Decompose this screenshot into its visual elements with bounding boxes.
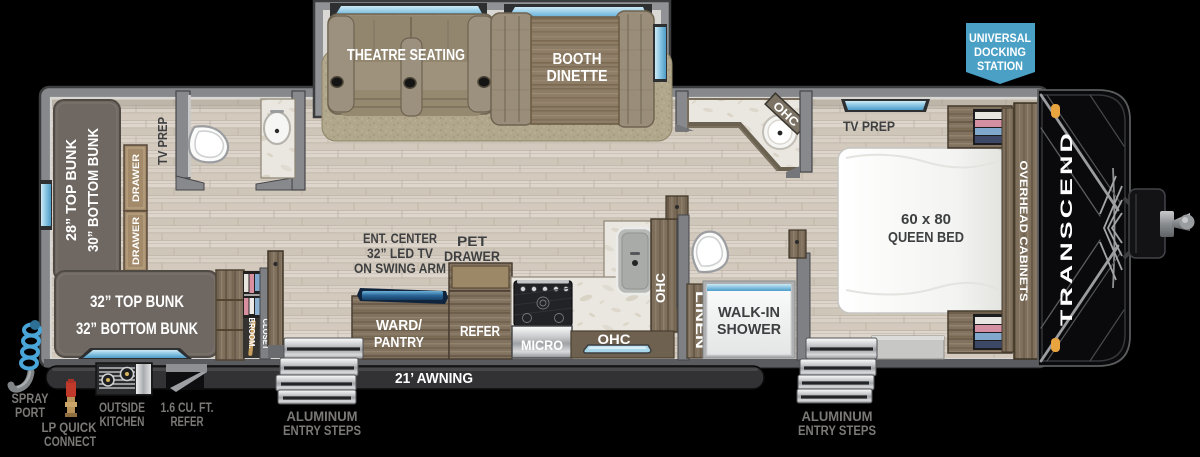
svg-text:BOOTH: BOOTH — [553, 51, 602, 68]
svg-text:THEATRE SEATING: THEATRE SEATING — [347, 47, 465, 64]
svg-text:ALUMINUM: ALUMINUM — [802, 409, 873, 424]
svg-text:28” TOP BUNK: 28” TOP BUNK — [64, 138, 80, 241]
svg-text:1.6 CU. FT.: 1.6 CU. FT. — [161, 400, 214, 415]
svg-text:32” TOP BUNK: 32” TOP BUNK — [90, 293, 184, 311]
svg-text:PANTRY: PANTRY — [374, 335, 424, 351]
svg-text:TV PREP: TV PREP — [843, 119, 895, 134]
svg-text:PORT: PORT — [15, 405, 46, 420]
svg-text:SHOWER: SHOWER — [717, 322, 782, 338]
svg-text:ENT. CENTER: ENT. CENTER — [363, 231, 437, 246]
svg-text:60 x 80: 60 x 80 — [901, 211, 951, 228]
svg-text:LP QUICK: LP QUICK — [42, 420, 97, 435]
svg-text:32” LED TV: 32” LED TV — [367, 246, 433, 261]
svg-text:DRAWER: DRAWER — [131, 216, 141, 265]
svg-text:32” BOTTOM BUNK: 32” BOTTOM BUNK — [76, 320, 198, 338]
svg-text:DOCKING: DOCKING — [974, 45, 1026, 59]
svg-text:UNIVERSAL: UNIVERSAL — [969, 31, 1031, 45]
svg-text:TRANSCEND: TRANSCEND — [1057, 130, 1076, 326]
svg-text:OHC: OHC — [653, 272, 668, 303]
svg-text:REFER: REFER — [460, 324, 500, 340]
svg-text:SPRAY: SPRAY — [12, 391, 49, 406]
svg-text:QUEEN BED: QUEEN BED — [888, 229, 964, 246]
svg-text:TV PREP: TV PREP — [155, 117, 170, 165]
svg-text:30” BOTTOM BUNK: 30” BOTTOM BUNK — [86, 128, 102, 252]
svg-text:MICRO: MICRO — [521, 338, 563, 353]
svg-text:PET: PET — [457, 234, 488, 249]
svg-text:ENTRY STEPS: ENTRY STEPS — [283, 423, 361, 438]
svg-text:DRAWER: DRAWER — [131, 153, 141, 202]
svg-text:CONNECT: CONNECT — [44, 434, 97, 449]
svg-text:WALK-IN: WALK-IN — [718, 305, 780, 321]
svg-text:WARD/: WARD/ — [376, 318, 422, 334]
svg-text:DRAWER: DRAWER — [444, 249, 500, 264]
svg-text:ENTRY STEPS: ENTRY STEPS — [798, 423, 876, 438]
svg-text:OVERHEAD CABINETS: OVERHEAD CABINETS — [1017, 161, 1029, 302]
svg-text:ON SWING ARM: ON SWING ARM — [354, 261, 446, 276]
svg-text:ALUMINUM: ALUMINUM — [287, 409, 358, 424]
svg-text:DINETTE: DINETTE — [547, 68, 608, 85]
svg-text:STATION: STATION — [977, 59, 1023, 73]
svg-text:KITCHEN: KITCHEN — [100, 414, 145, 429]
svg-text:OUTSIDE: OUTSIDE — [99, 400, 145, 415]
svg-text:BROOM.: BROOM. — [247, 318, 257, 349]
svg-text:21’ AWNING: 21’ AWNING — [395, 371, 473, 387]
svg-text:REFER: REFER — [171, 414, 204, 429]
